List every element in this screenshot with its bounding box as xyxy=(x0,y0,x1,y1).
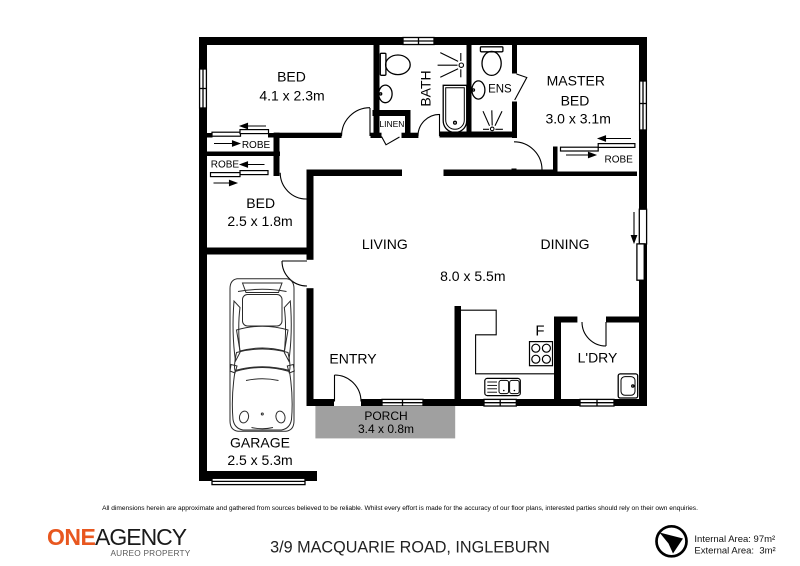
svg-text:2.5 x 1.8m: 2.5 x 1.8m xyxy=(227,213,292,229)
svg-text:ENTRY: ENTRY xyxy=(329,351,377,367)
svg-text:BED: BED xyxy=(561,93,590,109)
svg-text:ENS: ENS xyxy=(488,84,512,96)
svg-text:AUREO PROPERTY: AUREO PROPERTY xyxy=(110,548,190,558)
svg-text:2.5 x 5.3m: 2.5 x 5.3m xyxy=(227,452,292,468)
svg-text:BATH: BATH xyxy=(418,70,434,106)
svg-text:AGENCY: AGENCY xyxy=(95,524,187,550)
svg-text:3.0 x 3.1m: 3.0 x 3.1m xyxy=(546,111,611,127)
svg-text:ONE: ONE xyxy=(47,524,96,550)
svg-text:3/9 MACQUARIE ROAD, INGLEBURN: 3/9 MACQUARIE ROAD, INGLEBURN xyxy=(270,539,550,557)
svg-text:BED: BED xyxy=(277,69,306,85)
svg-text:3.4 x 0.8m: 3.4 x 0.8m xyxy=(358,422,414,436)
svg-text:MASTER: MASTER xyxy=(547,73,605,89)
svg-text:F: F xyxy=(535,323,544,340)
svg-text:DINING: DINING xyxy=(541,236,590,252)
svg-text:4.1 x 2.3m: 4.1 x 2.3m xyxy=(259,88,324,104)
svg-text:All dimensions herein are appr: All dimensions herein are approximate an… xyxy=(102,505,698,512)
svg-text:ROBE: ROBE xyxy=(242,140,271,151)
svg-text:GARAGE: GARAGE xyxy=(230,435,290,451)
svg-text:BED: BED xyxy=(246,195,275,211)
svg-text:ROBE: ROBE xyxy=(211,160,240,171)
svg-text:ROBE: ROBE xyxy=(605,155,634,166)
svg-text:LIVING: LIVING xyxy=(362,236,408,252)
svg-text:Internal Area: 97m²: Internal Area: 97m² xyxy=(694,534,775,545)
svg-text:LINEN: LINEN xyxy=(379,119,404,129)
svg-text:L'DRY: L'DRY xyxy=(578,350,618,366)
svg-text:8.0 x 5.5m: 8.0 x 5.5m xyxy=(440,268,505,284)
svg-text:External Area: 3m²: External Area: 3m² xyxy=(694,546,775,557)
